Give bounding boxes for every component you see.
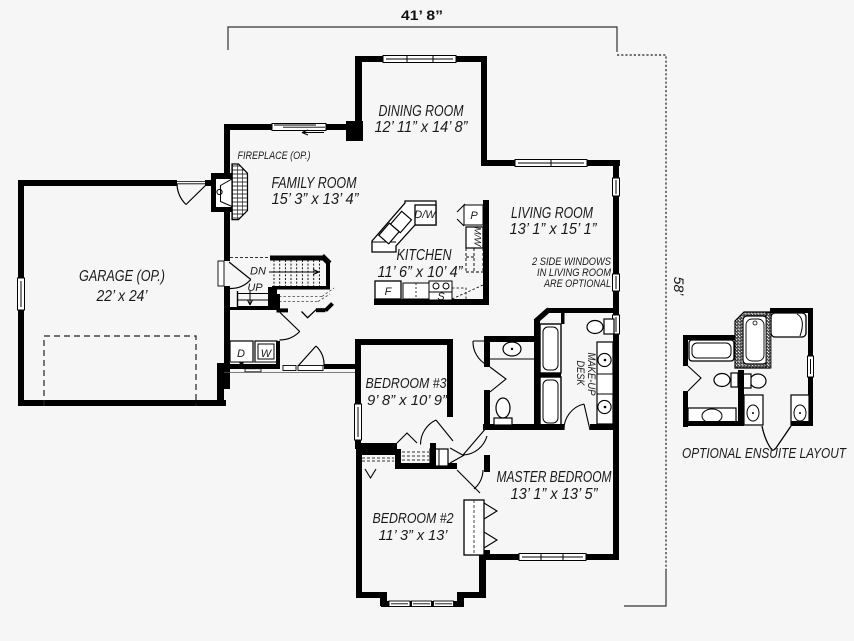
svg-text:15’ 3” x 13’ 4”: 15’ 3” x 13’ 4” bbox=[272, 191, 360, 208]
svg-text:MASTER BEDROOM: MASTER BEDROOM bbox=[497, 469, 612, 486]
svg-text:22’ x 24’: 22’ x 24’ bbox=[96, 288, 148, 305]
svg-text:BEDROOM #2: BEDROOM #2 bbox=[373, 510, 455, 527]
svg-text:OPTIONAL ENSUITE LAYOUT: OPTIONAL ENSUITE LAYOUT bbox=[682, 445, 847, 462]
svg-text:DESK: DESK bbox=[574, 361, 586, 387]
svg-text:11’ 3” x 13’: 11’ 3” x 13’ bbox=[379, 527, 449, 544]
svg-text:11’ 6” x 10’ 4”: 11’ 6” x 10’ 4” bbox=[378, 264, 464, 281]
svg-text:58’: 58’ bbox=[671, 277, 687, 297]
svg-text:13’ 1” x 13’ 5”: 13’ 1” x 13’ 5” bbox=[511, 486, 599, 503]
svg-text:ARE OPTIONAL: ARE OPTIONAL bbox=[543, 278, 611, 290]
svg-text:41’ 8”: 41’ 8” bbox=[401, 7, 443, 23]
svg-text:12’ 11” x 14’ 8”: 12’ 11” x 14’ 8” bbox=[375, 119, 469, 136]
svg-text:GARAGE (OP.): GARAGE (OP.) bbox=[79, 268, 165, 285]
svg-text:W: W bbox=[261, 348, 273, 360]
svg-text:DINING ROOM: DINING ROOM bbox=[379, 103, 465, 120]
svg-text:S: S bbox=[437, 291, 445, 303]
svg-text:UP: UP bbox=[247, 282, 263, 294]
svg-text:P: P bbox=[470, 210, 478, 222]
svg-text:LIVING ROOM: LIVING ROOM bbox=[511, 205, 594, 222]
svg-text:FIREPLACE (OP.): FIREPLACE (OP.) bbox=[238, 150, 311, 162]
svg-text:KITCHEN: KITCHEN bbox=[397, 247, 452, 264]
svg-text:D/W: D/W bbox=[414, 209, 437, 221]
svg-text:FAMILY ROOM: FAMILY ROOM bbox=[272, 175, 358, 192]
svg-text:DN: DN bbox=[250, 266, 266, 278]
svg-text:M/W: M/W bbox=[472, 227, 483, 248]
svg-text:13’ 1” x 15’ 1”: 13’ 1” x 15’ 1” bbox=[510, 221, 598, 238]
svg-text:D: D bbox=[237, 348, 245, 360]
svg-text:9’ 8” x 10’ 9”: 9’ 8” x 10’ 9” bbox=[367, 392, 448, 409]
svg-text:BEDROOM #3: BEDROOM #3 bbox=[366, 375, 448, 392]
